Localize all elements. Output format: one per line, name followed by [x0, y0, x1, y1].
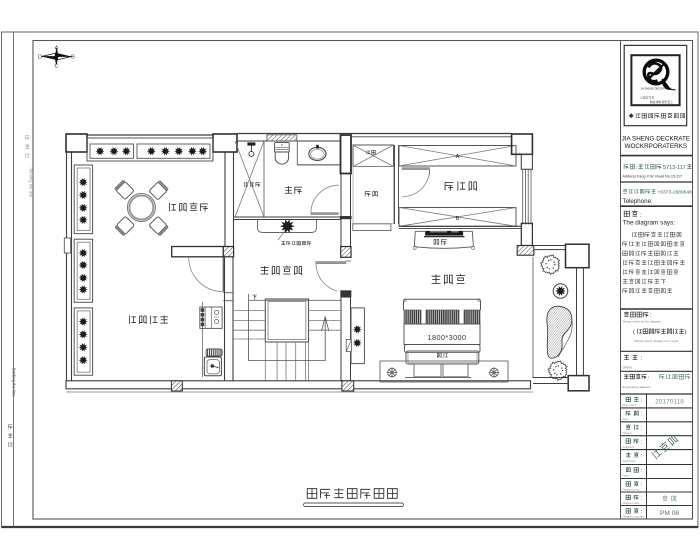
- svg-text:B: B: [71, 55, 75, 61]
- svg-text:Item:: Item:: [623, 417, 630, 421]
- svg-text:以诚信为本: 以诚信为本: [640, 96, 654, 100]
- svg-text:JIA SHENG DECORATION: JIA SHENG DECORATION: [640, 87, 671, 91]
- svg-text:Design for th:: Design for th:: [623, 488, 640, 492]
- svg-text:Date:: Date:: [623, 474, 630, 478]
- svg-text:Design:: Design:: [623, 431, 633, 435]
- svg-text:5713-117: 5713-117: [663, 165, 686, 171]
- svg-text:): ): [685, 329, 687, 335]
- svg-text:Graphics:: Graphics:: [623, 445, 636, 449]
- svg-text:(: (: [633, 329, 635, 335]
- svg-text:精益求精 服务至上: 精益求精 服务至上: [650, 100, 673, 104]
- svg-text:Telephone:: Telephone:: [623, 198, 654, 205]
- svg-text:Diagram dist:: Diagram dist:: [623, 501, 640, 505]
- svg-text:1800*3000: 1800*3000: [428, 333, 467, 342]
- svg-text:D: D: [38, 55, 42, 61]
- svg-text:Approved:: Approved:: [623, 459, 636, 463]
- svg-text:WOCKRPORATERKS: WOCKRPORATERKS: [625, 143, 688, 150]
- svg-text:Design intent for the diagram:: Design intent for the diagram:: [623, 319, 663, 323]
- svg-text:Engineering address:: Engineering address:: [623, 385, 652, 389]
- svg-text:Owner:: Owner:: [623, 365, 633, 369]
- svg-text:PM 08: PM 08: [660, 510, 679, 517]
- svg-text:The diagram says:: The diagram says:: [623, 220, 676, 227]
- svg-text:B: B: [456, 216, 460, 222]
- svg-text:A: A: [456, 154, 460, 160]
- svg-text:JIA SHENG DECKRATE: JIA SHENG DECKRATE: [622, 136, 690, 143]
- svg-text:+0373-2689648: +0373-2689648: [658, 189, 693, 195]
- svg-text:Diagram number:: Diagram number:: [623, 515, 646, 519]
- svg-text::: :: [640, 212, 642, 219]
- svg-text:Without intent display not to: Without intent display not to used: [634, 339, 679, 343]
- svg-text:Plan order:: Plan order:: [623, 403, 637, 407]
- svg-text:- Binding the line: - Binding the line: [29, 166, 34, 198]
- svg-text:Address:Fang X.W. Road No.15-1: Address:Fang X.W. Road No.15-117: [623, 174, 683, 178]
- svg-text:20170118: 20170118: [655, 399, 684, 406]
- svg-text:Binding the line: Binding the line: [12, 368, 17, 397]
